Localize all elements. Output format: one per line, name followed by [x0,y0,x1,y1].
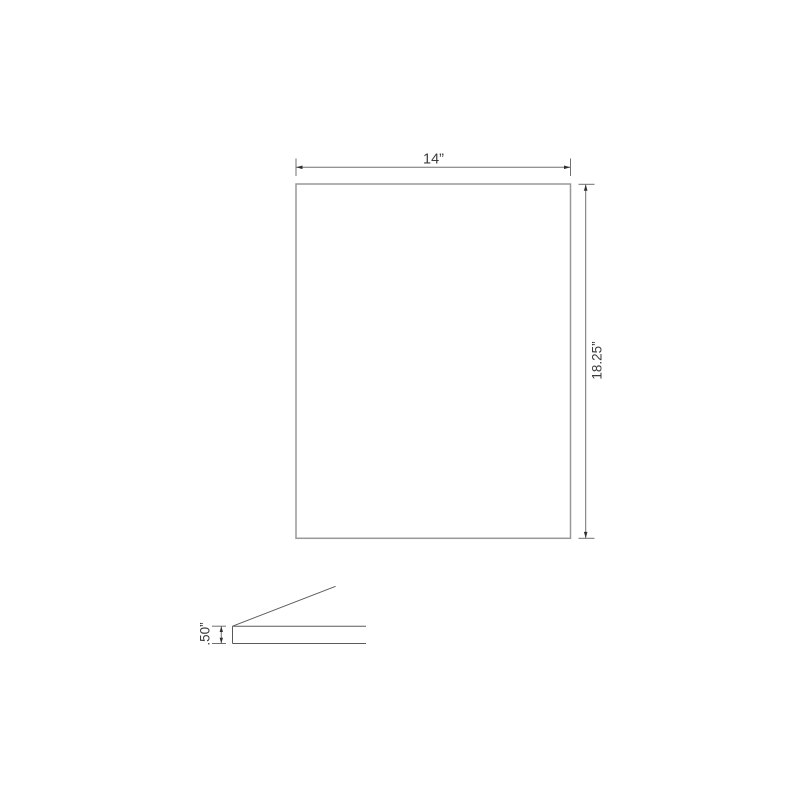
svg-text:.50”: .50” [198,622,213,645]
svg-text:14”: 14” [423,152,444,168]
svg-text:18.25”: 18.25” [590,341,605,379]
